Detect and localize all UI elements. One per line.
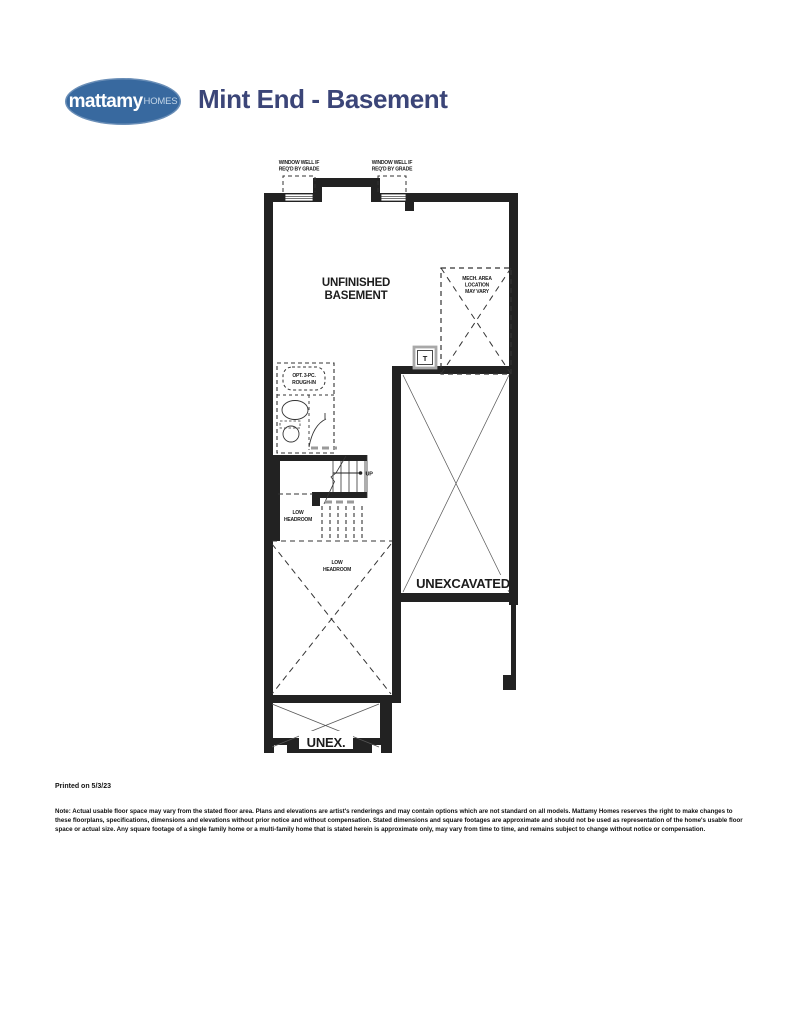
label-mech-area-2: LOCATION [465, 283, 490, 289]
window-left [285, 194, 313, 201]
label-unfinished-basement-1: UNFINISHED [322, 277, 390, 289]
printed-on-text: Printed on 5/3/23 [55, 783, 111, 790]
disclaimer-text: Note: Actual usable floor space may vary… [55, 808, 743, 834]
label-unex: UNEX. [307, 735, 346, 750]
floorplan-page: mattamyHOMES Mint End - Basement [0, 0, 791, 1024]
label-window-well-right-1: WINDOW WELL IF [372, 160, 413, 166]
door-swing-arc [309, 419, 326, 447]
tub-fixture [282, 401, 308, 420]
label-tank: T [423, 354, 428, 363]
label-low-headroom-stairs-2: HEADROOM [284, 517, 312, 523]
unexcavated-area [403, 375, 509, 592]
label-low-headroom-area-2: HEADROOM [323, 567, 351, 573]
label-up: UP [366, 472, 374, 478]
floor-plan-drawing: WINDOW WELL IF REQ'D BY GRADE WINDOW WEL… [0, 0, 791, 1024]
label-window-well-right-2: REQ'D BY GRADE [372, 167, 413, 173]
label-mech-area-1: MECH. AREA [462, 276, 492, 282]
label-opt-rough-in-2: ROUGH-IN [292, 380, 316, 386]
label-unexcavated: UNEXCAVATED [416, 576, 510, 591]
label-window-well-left-2: REQ'D BY GRADE [279, 167, 320, 173]
label-window-well-left-1: WINDOW WELL IF [279, 160, 320, 166]
label-opt-rough-in-1: OPT. 3-PC. [292, 373, 316, 379]
window-right [381, 194, 406, 201]
exterior-walls [264, 178, 518, 753]
label-mech-area-3: MAY VARY [465, 289, 490, 295]
label-low-headroom-stairs-1: LOW [292, 510, 304, 516]
label-unfinished-basement-2: BASEMENT [325, 290, 388, 302]
label-low-headroom-area-1: LOW [331, 560, 343, 566]
basement-windows [285, 194, 406, 201]
